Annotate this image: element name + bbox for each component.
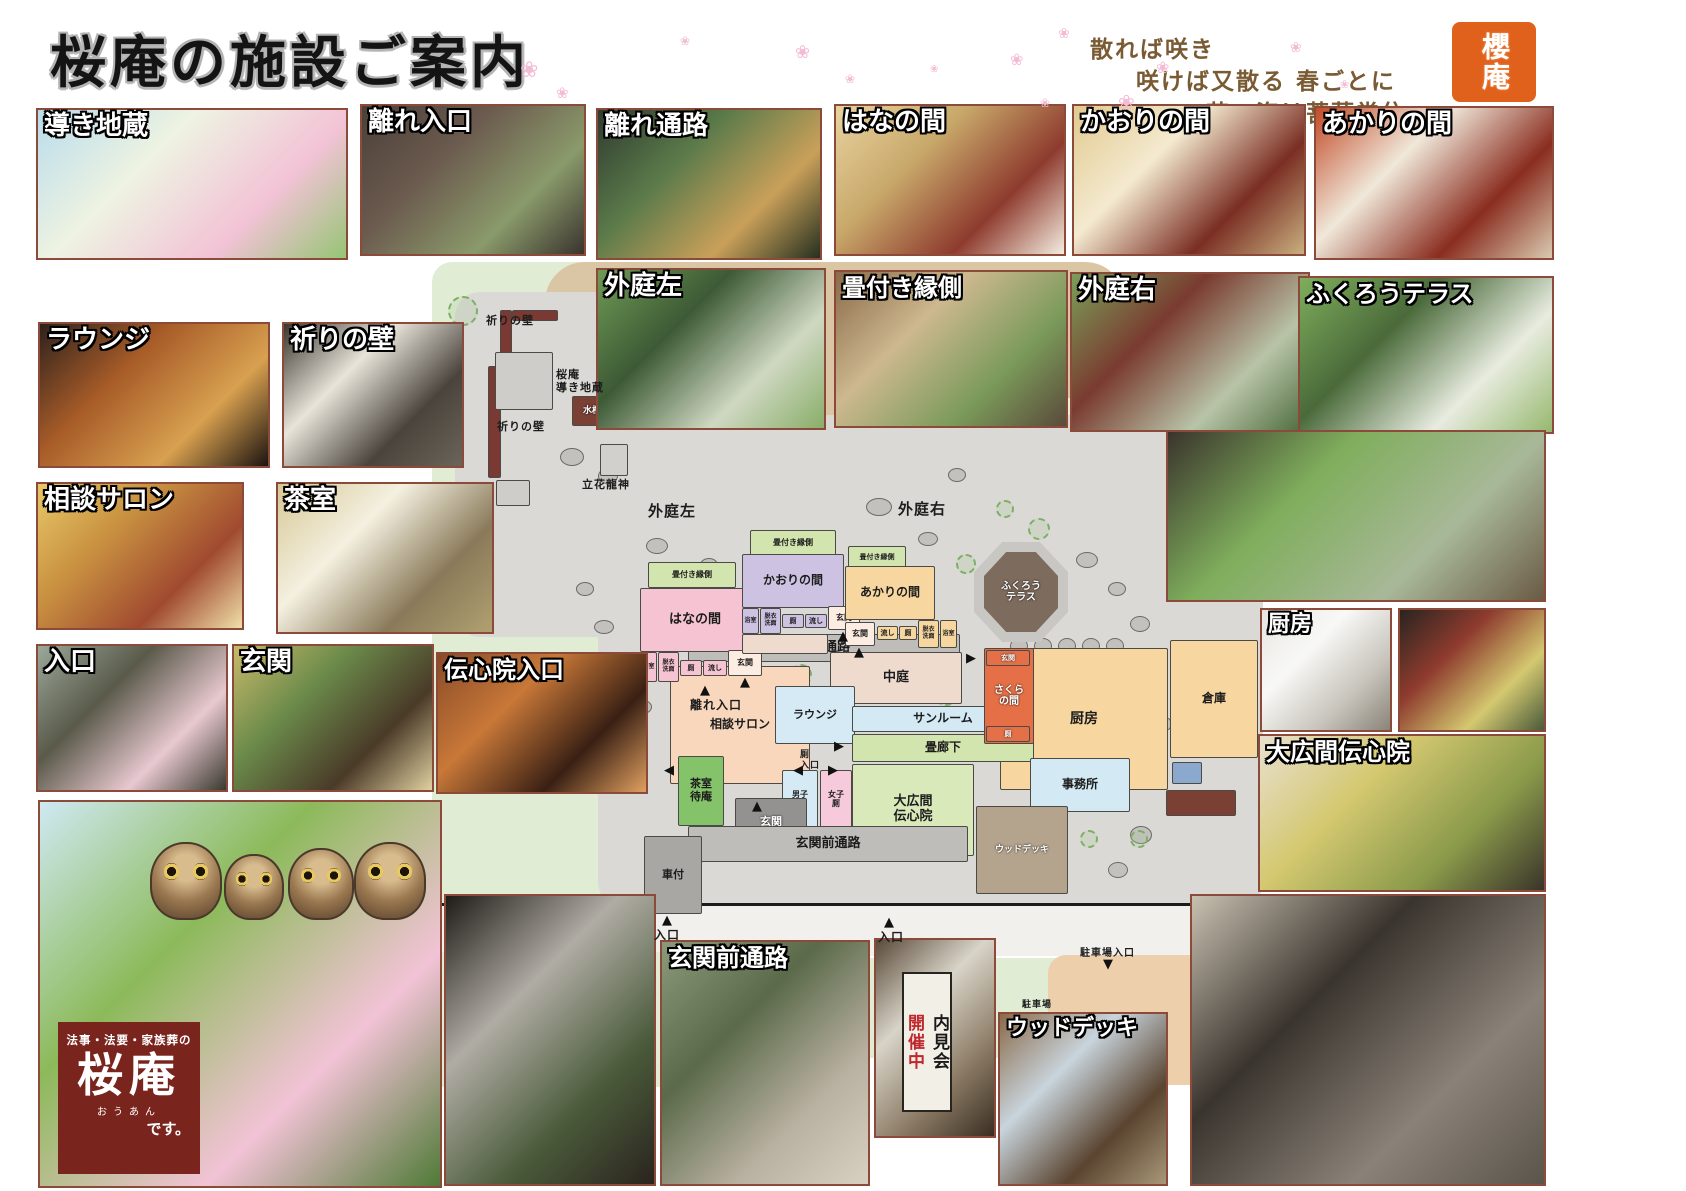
stone-icon: [594, 620, 614, 634]
map-room-akari-s4: 脱衣 洗面: [918, 620, 939, 648]
sakura-petal-icon: ❀: [680, 34, 690, 48]
photo-funeral-hall-photo: [1190, 894, 1546, 1186]
photo-genkan: 玄関: [232, 644, 434, 792]
map-room-hana-s3: 厠: [680, 660, 702, 676]
map-room-label: 浴室: [942, 631, 954, 638]
photo-label: 茶室: [284, 486, 336, 516]
map-label-9: 入口: [878, 930, 904, 944]
photo-sotoniwa-hidari: 外庭左: [596, 268, 826, 430]
stone-icon: [948, 468, 966, 482]
sakura-petal-icon: ❀: [1340, 78, 1349, 91]
photo-tatami-engawa: 畳付き縁側: [834, 270, 1068, 428]
photo-label: 離れ通路: [604, 112, 708, 142]
map-room-engawa-c: 畳付き縁側: [848, 546, 906, 568]
facility-guide-poster: 桜庵の施設ご案内 散れば咲き 咲けば又散る 春ごとに 花の姿は菩薩常住 櫻庵 法…: [0, 0, 1686, 1191]
map-room-label: 流し: [881, 629, 895, 637]
bush-icon: [996, 500, 1014, 518]
sakura-petal-icon: ❀: [795, 42, 810, 63]
map-label-2: 祈りの壁: [497, 420, 545, 433]
sakura-petal-icon: ❀: [1040, 96, 1050, 110]
sakura-petal-icon: ❀: [845, 72, 855, 86]
map-room-joshi-kawaya: 女子 厠: [820, 770, 852, 828]
photo-hana-no-ma: はなの間: [834, 104, 1066, 256]
map-room-jizo-shrine: [495, 352, 553, 410]
bush-icon: [1080, 830, 1098, 848]
photo-label: はなの間: [842, 108, 946, 138]
map-room-label: 厠: [790, 617, 797, 625]
arrow-marker-icon: ▶: [828, 764, 838, 777]
map-label-8: 入口: [654, 928, 680, 942]
photo-sotoniwa-migi: 外庭右: [1070, 272, 1310, 432]
sakura-petal-icon: ❀: [1290, 40, 1302, 56]
map-room-label: 車付: [662, 869, 684, 882]
stone-icon: [646, 538, 668, 554]
map-room-label: 女子 厠: [828, 790, 844, 808]
map-room-label: 脱衣 洗面: [922, 627, 934, 641]
page-title: 桜庵の施設ご案内: [50, 18, 530, 99]
photo-iriguchi: 入口: [36, 644, 228, 792]
photo-label: 相談サロン: [44, 486, 174, 516]
map-room-kaori-s3: 厠: [782, 614, 804, 628]
map-room-akari-s2: 流し: [877, 626, 898, 640]
map-room-sakura-genkan: 玄関: [986, 650, 1030, 666]
arrow-marker-icon: ▶: [834, 740, 844, 753]
stone-icon: [918, 532, 938, 546]
bush-icon: [1028, 518, 1050, 540]
photo-genkan-mae-tsuro-photo: 玄関前通路: [660, 940, 870, 1186]
arrow-marker-icon: ▲: [884, 916, 894, 929]
logo-suffix: です。: [58, 1118, 200, 1139]
sakura-petal-icon: ❀: [930, 64, 938, 75]
photo-label: 祈りの壁: [290, 326, 394, 356]
map-room-kaori-s4: 流し: [805, 614, 827, 628]
ouan-logo: 法事・法要・家族葬の 桜庵 おうあん です。: [58, 1022, 200, 1174]
photo-label: かおりの間: [1080, 108, 1210, 138]
map-room-ryujin-box: [600, 444, 628, 476]
map-room-label: ラウンジ: [793, 709, 837, 722]
map-room-label: 茶室 待庵: [690, 778, 712, 803]
owl-icon: [224, 854, 284, 920]
photo-label: ラウンジ: [46, 326, 150, 356]
map-room-lounge-room: ラウンジ: [775, 686, 855, 744]
map-room-label: 相談サロン: [710, 718, 770, 732]
photo-label: 玄関前通路: [668, 944, 788, 972]
map-room-label: 中庭: [883, 671, 909, 686]
photo-lounge: ラウンジ: [38, 322, 270, 468]
photo-akari-no-ma: あかりの間: [1314, 106, 1554, 260]
photo-chashitsu: 茶室: [276, 482, 494, 634]
stone-icon: [560, 448, 584, 466]
map-room-label: 玄関前通路: [795, 837, 860, 852]
map-room-hana-s2: 脱衣 洗面: [658, 652, 679, 682]
map-room-label: はなの間: [669, 613, 721, 628]
owl-icon: [150, 842, 222, 920]
sakura-petal-icon: ❀: [1118, 90, 1135, 114]
photo-label: 導き地蔵: [44, 112, 148, 142]
map-room-label: 事務所: [1062, 778, 1098, 792]
photo-wood-deck-photo: ウッドデッキ: [998, 1012, 1168, 1186]
map-room-label: 流し: [708, 664, 722, 672]
stone-icon: [1108, 862, 1128, 878]
map-room-kaori-room: かおりの間: [742, 554, 844, 608]
map-room-hana-s4: 流し: [703, 660, 727, 676]
map-room-label: 厠: [905, 629, 912, 637]
stone-icon: [1130, 616, 1150, 632]
map-room-label: 倉庫: [1202, 692, 1226, 706]
map-room-kaori-s1: 浴室: [742, 608, 759, 634]
arrow-marker-icon: ▲: [662, 914, 672, 927]
photo-fukurou-terrace: ふくろうテラス: [1298, 276, 1554, 434]
map-room-kaori-garden: [742, 634, 828, 654]
map-label-5: 外庭右: [898, 500, 946, 518]
arrow-marker-icon: ▶: [966, 652, 976, 665]
photo-label: 厨房: [1268, 612, 1312, 637]
sakura-petal-icon: ❀: [1156, 58, 1169, 77]
hanko-seal-text: 櫻庵: [1474, 32, 1514, 92]
map-label-3: 立花龍神: [582, 478, 630, 491]
map-room-genkan-mae-corridor: 玄関前通路: [688, 826, 968, 862]
photo-daihiroma-denshinin-photo: 大広間伝心院: [1258, 734, 1546, 892]
map-room-souko-room: 倉庫: [1170, 640, 1258, 758]
map-label-1: 桜庵 導き地蔵: [556, 368, 604, 394]
map-room-akari-s5: 浴室: [940, 620, 957, 648]
sakura-petal-icon: ❀: [520, 58, 538, 83]
map-room-label: 玄関: [737, 658, 753, 667]
map-room-engawa-a: 畳付き縁側: [648, 562, 736, 588]
sakura-petal-icon: ❀: [1058, 26, 1070, 42]
photo-label: 入口: [44, 648, 96, 678]
stone-icon: [1108, 582, 1126, 596]
arrow-marker-icon: ◀: [664, 764, 674, 777]
logo-name: 桜庵: [58, 1048, 200, 1103]
map-room-label: 玄関: [852, 629, 868, 638]
bush-icon: [1130, 830, 1148, 848]
map-room-sakura-kawaya: 厠: [986, 726, 1030, 742]
photo-label: あかりの間: [1322, 110, 1452, 140]
map-room-label: サンルーム: [913, 712, 973, 726]
map-room-blue-box: [1172, 762, 1202, 784]
open-house-sign: 内見会 開催中: [902, 972, 952, 1112]
bush-icon: [956, 554, 976, 574]
map-room-label: 厨房: [1070, 711, 1098, 727]
map-label-6: 離れ入口: [690, 698, 742, 712]
map-room-label: あかりの間: [860, 586, 920, 600]
map-room-label: 畳付き縁側: [672, 570, 712, 579]
map-room-label: 浴室: [744, 618, 756, 625]
arrow-marker-icon: ▲: [854, 646, 864, 659]
map-room-label: さくら の間: [994, 685, 1024, 708]
map-label-11: 駐車場: [1022, 1000, 1052, 1011]
map-room-label: ウッドデッキ: [995, 845, 1049, 855]
photo-label: 畳付き縁側: [842, 274, 962, 302]
photo-michibiki-jizo: 導き地蔵: [36, 108, 348, 260]
map-room-label: 畳付き縁側: [773, 538, 813, 547]
photo-label: 玄関: [240, 648, 292, 678]
arrow-marker-icon: ▲: [838, 630, 848, 643]
photo-soudan-salon: 相談サロン: [36, 482, 244, 630]
map-room-jimusho: 事務所: [1030, 758, 1130, 812]
photo-label: 外庭右: [1078, 276, 1156, 306]
photo-hanare-tsuro: 離れ通路: [596, 108, 822, 260]
map-label-0: 祈りの壁: [486, 314, 534, 327]
stone-icon: [576, 582, 594, 596]
photo-label: 離れ入口: [368, 108, 472, 138]
poem-line-2: 咲けば又散る 春ごとに: [1136, 62, 1396, 96]
arrow-marker-icon: ▲: [700, 684, 710, 697]
logo-tagline: 法事・法要・家族葬の: [58, 1032, 200, 1048]
hanko-seal-icon: 櫻庵: [1452, 22, 1536, 102]
photo-denshinin-iriguchi: 伝心院入口: [436, 652, 648, 794]
arrow-marker-icon: ▲: [740, 676, 750, 689]
map-room-brown-box: [1166, 790, 1236, 816]
map-room-label: 玄関: [1001, 654, 1015, 662]
photo-bento-photo: [1398, 608, 1546, 732]
arrow-marker-icon: ▲: [752, 800, 762, 813]
map-room-hana-room: はなの間: [640, 588, 750, 652]
sign-line-1: 内見会: [927, 1014, 952, 1071]
photo-terrace-owl-statue: [1166, 430, 1546, 602]
map-room-label: 流し: [809, 617, 823, 625]
photo-label: 伝心院入口: [444, 656, 564, 684]
arrow-marker-icon: ▼: [1103, 958, 1113, 971]
stone-icon: [1076, 552, 1098, 568]
sakura-petal-icon: ❀: [1010, 50, 1023, 69]
map-room-kaori-s2: 脱衣 洗面: [760, 608, 781, 634]
map-room-chashitsu-room: 茶室 待庵: [678, 756, 724, 826]
photo-inori-no-kabe: 祈りの壁: [282, 322, 464, 468]
map-room-wood-deck-map: ウッドデッキ: [976, 806, 1068, 894]
sakura-petal-icon: ❀: [556, 84, 569, 102]
owl-icon: [354, 842, 426, 920]
map-room-label: ふくろう テラス: [1001, 581, 1041, 604]
map-room-label: 畳付き縁側: [860, 553, 895, 561]
photo-dark-gate: [444, 894, 656, 1186]
photo-hanare-iriguchi: 離れ入口: [360, 104, 586, 256]
map-room-label: かおりの間: [763, 574, 823, 588]
poem-line-1: 散れば咲き: [1090, 30, 1215, 64]
logo-furigana: おうあん: [58, 1103, 200, 1118]
photo-chubo-photo: 厨房: [1260, 608, 1392, 732]
map-room-label: 大広間 伝心院: [893, 795, 932, 825]
map-room-label: 畳廊下: [925, 741, 961, 755]
map-room-label: 厠: [1005, 730, 1012, 738]
stone-icon: [866, 498, 892, 516]
photo-kaori-no-ma: かおりの間: [1072, 104, 1306, 256]
map-label-4: 外庭左: [648, 502, 696, 520]
map-room-label: 脱衣 洗面: [764, 614, 776, 628]
owl-icon: [288, 848, 354, 920]
photo-label: ふくろうテラス: [1306, 280, 1474, 308]
map-room-akari-s3: 厠: [899, 626, 917, 640]
photo-label: ウッドデッキ: [1006, 1016, 1138, 1041]
map-room-akari-room: あかりの間: [845, 566, 935, 620]
map-room-stairs: [496, 480, 530, 506]
sign-line-2: 開催中: [902, 1014, 927, 1071]
arrow-marker-icon: ◀: [793, 764, 803, 777]
map-room-akari-s1: 玄関: [845, 622, 875, 646]
map-room-label: 厠: [688, 664, 695, 672]
map-room-label: 脱衣 洗面: [662, 660, 674, 674]
photo-label: 外庭左: [604, 272, 682, 302]
map-label-7: 厠 入口: [800, 750, 820, 772]
map-room-engawa-b: 畳付き縁側: [750, 530, 836, 556]
photo-label: 大広間伝心院: [1266, 738, 1410, 766]
